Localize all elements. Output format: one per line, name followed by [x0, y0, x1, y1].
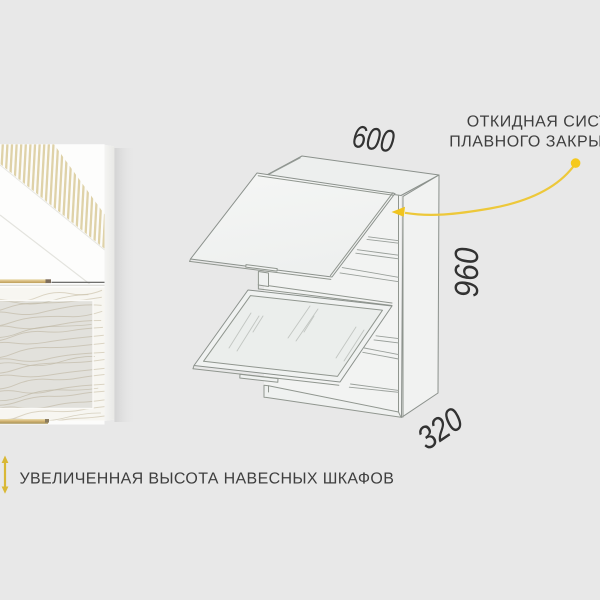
svg-text:600: 600: [350, 119, 397, 160]
svg-text:960: 960: [449, 247, 486, 297]
svg-text:ПЛАВНОГО ЗАКРЫВАНИЯ: ПЛАВНОГО ЗАКРЫВАНИЯ: [449, 134, 600, 151]
svg-text:УВЕЛИЧЕННАЯ ВЫСОТА НАВЕСНЫХ ШК: УВЕЛИЧЕННАЯ ВЫСОТА НАВЕСНЫХ ШКАФОВ: [20, 470, 395, 487]
svg-text:ОТКИДНАЯ СИСТЕМА: ОТКИДНАЯ СИСТЕМА: [467, 114, 600, 131]
